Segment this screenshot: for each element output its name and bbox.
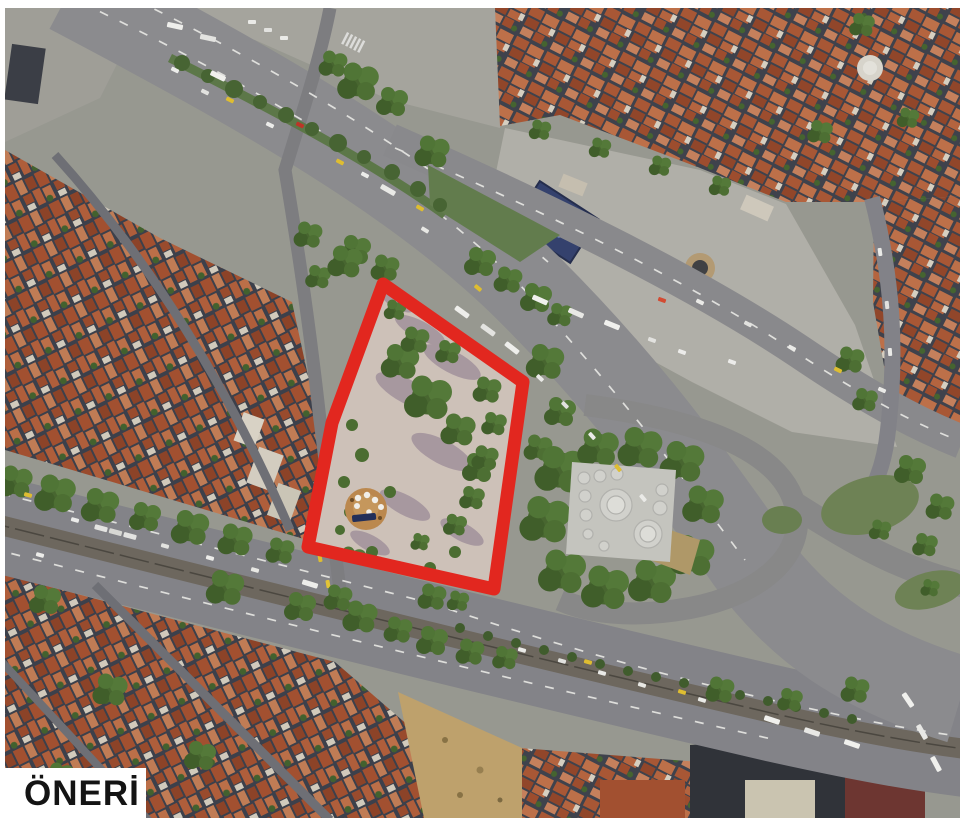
satellite-map xyxy=(5,8,960,818)
atmosphere-tint xyxy=(5,8,960,818)
proposal-label-box: ÖNERİ xyxy=(0,768,146,820)
screenshot-root: ÖNERİ xyxy=(0,0,966,822)
proposal-label-text: ÖNERİ xyxy=(0,774,140,814)
